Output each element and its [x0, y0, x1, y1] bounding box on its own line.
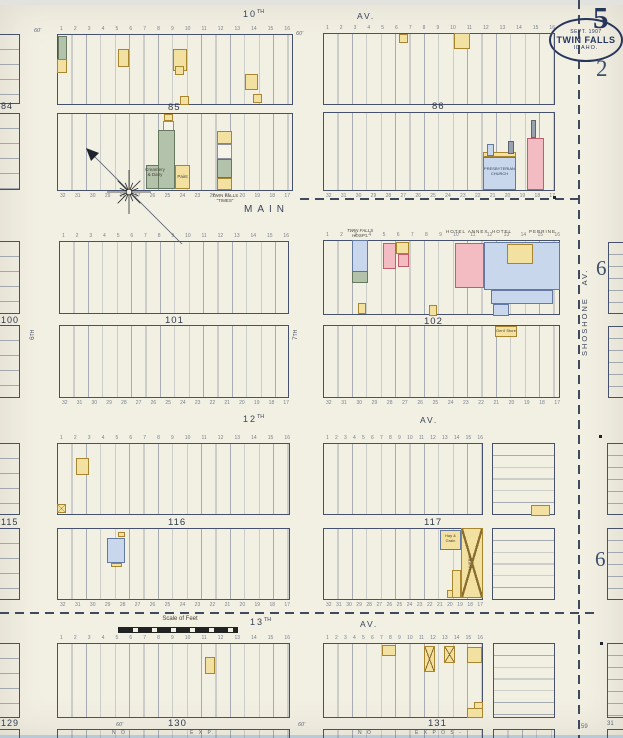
building — [164, 114, 173, 121]
block-117-south-east — [492, 528, 555, 600]
title-stamp-oval: SEPT. 1907 TWIN FALLS IDAHO. — [549, 18, 623, 62]
partial-block-right-4 — [607, 528, 623, 600]
street-label-6th: 6TH — [29, 316, 36, 340]
block-label-86: 86 — [432, 101, 445, 112]
partial-block-right-3 — [607, 443, 623, 515]
building — [467, 647, 482, 663]
building — [118, 49, 129, 67]
building — [352, 271, 368, 283]
building — [382, 645, 396, 656]
marker-dot — [600, 642, 603, 645]
lot-numbers: 1 2 3 4 5 6 7 8 9 10 11 12 13 14 15 16 — [60, 26, 290, 33]
dashed-line-shoshone — [578, 0, 580, 738]
scan-edge-top — [0, 0, 623, 5]
building-label-times: TWIN FALLS“TIMES” — [203, 193, 247, 204]
street-label-13th: 13TH — [250, 617, 271, 627]
street-label-main: MAIN — [244, 204, 289, 215]
building — [487, 144, 494, 156]
corner-number-31: 31 — [607, 721, 614, 727]
lot-numbers: 32 31 30 29 28 27 26 25 24 23 22 21 20 1… — [326, 400, 560, 407]
building — [467, 708, 483, 718]
corner-number-59: 59 — [581, 724, 588, 730]
building — [358, 303, 366, 314]
lot-numbers: 1 2 3 4 5 6 7 8 9 10 11 12 13 14 15 16 — [326, 25, 555, 32]
building — [452, 570, 461, 598]
strip-text-no: N O — [112, 730, 127, 736]
street-label-12th: 12TH — [243, 414, 264, 424]
partial-block-right-strip — [607, 729, 623, 738]
lot-numbers: 32 31 30 29 28 27 26 25 24 23 22 21 20 1… — [62, 400, 289, 407]
lot-numbers: 32 31 30 29 28 27 26 25 24 23 22 21 20 1… — [326, 193, 555, 200]
block-label-116: 116 — [168, 517, 186, 528]
building — [180, 96, 189, 105]
building — [217, 131, 232, 144]
partial-block-100-south — [0, 325, 20, 398]
building — [253, 94, 262, 103]
width-annotation: 60' — [34, 28, 41, 34]
building — [76, 458, 89, 475]
marker-dot — [599, 435, 602, 438]
width-annotation: 60' — [296, 31, 303, 37]
block-131 — [323, 643, 483, 718]
partial-block-115-south — [0, 528, 20, 600]
building-label-hotel-perrine: HOTEL PERRINE — [492, 229, 556, 234]
width-annotation: 60' — [116, 722, 123, 728]
block-label-85: 85 — [168, 102, 181, 113]
building — [175, 66, 184, 75]
building-label-livery: LIVERY — [468, 548, 473, 578]
building — [429, 305, 437, 316]
strip-text-expos: E X P O S - — [415, 730, 463, 736]
building — [205, 657, 215, 674]
block-label-100: 100 — [1, 315, 19, 325]
lot-numbers: 1 2 3 4 5 6 7 8 9 10 11 12 13 14 15 16 — [60, 635, 290, 642]
building — [493, 304, 509, 316]
building — [107, 538, 125, 563]
lot-numbers: 1 2 3 4 5 6 7 8 9 10 11 12 13 14 15 16 — [60, 435, 290, 442]
north-arrow-compass — [72, 136, 197, 251]
street-label-av-13th: AV. — [360, 619, 378, 629]
block-101-south — [59, 325, 289, 398]
street-label-7th: 7TH — [292, 316, 299, 340]
building — [398, 254, 409, 267]
lot-numbers: 32 31 30 29 28 27 26 25 24 23 22 21 20 1… — [60, 602, 290, 609]
right-block-number-6-lower: 6 — [595, 547, 606, 572]
building-label-hotel-annex: HOTEL ANNEX — [446, 229, 486, 234]
dashed-line-city-limits — [0, 612, 600, 614]
street-label-av-12th: AV. — [420, 415, 438, 425]
building-times-office — [217, 159, 232, 178]
partial-block-84-south — [0, 113, 20, 190]
stamp-state: IDAHO. — [574, 45, 599, 51]
right-block-number-6-upper: 6 — [596, 256, 607, 281]
building-hotel-annex — [455, 243, 484, 288]
partial-block-115-north — [0, 443, 20, 515]
street-label-av-top: AV. — [357, 11, 375, 21]
scale-bar — [118, 627, 238, 633]
block-label-101: 101 — [165, 315, 184, 326]
building-label-store: Gen'l Store — [492, 329, 520, 334]
building — [111, 563, 122, 567]
partial-block-right-2 — [608, 326, 623, 398]
lot-numbers: 1 2 3 4 5 6 7 8 9 10 11 12 13 14 15 16 — [326, 635, 483, 642]
block-label-131: 131 — [428, 718, 447, 729]
building-barn — [444, 646, 455, 663]
block-131-east — [493, 643, 555, 718]
building — [245, 74, 258, 90]
partial-block-129-strip — [0, 729, 20, 738]
building — [491, 290, 553, 304]
building-hotel-courtyard — [507, 244, 533, 264]
building — [527, 138, 544, 190]
block-strip-below-130 — [57, 729, 290, 738]
lot-numbers: 32 31 30 29 28 27 26 25 24 23 22 21 20 1… — [326, 602, 483, 609]
block-label-84: 84 — [1, 101, 13, 111]
building-label-church: PRESBYTERIANCHURCH — [481, 167, 518, 177]
block-strip-below-131-east — [493, 729, 555, 738]
building — [531, 505, 550, 516]
partial-block-100-north — [0, 241, 20, 314]
building-chimney — [531, 120, 536, 138]
building — [118, 532, 125, 537]
marker-dot — [553, 196, 556, 199]
block-101-north — [59, 241, 289, 314]
block-label-117: 117 — [424, 517, 442, 528]
block-label-129: 129 — [1, 718, 19, 728]
building — [383, 243, 396, 269]
building-barn — [57, 504, 66, 513]
building — [57, 59, 67, 73]
building — [217, 178, 232, 190]
partial-block-129 — [0, 643, 20, 718]
block-116-north — [57, 443, 290, 515]
building — [399, 34, 408, 43]
strip-text-no: N O — [358, 730, 373, 736]
block-label-102: 102 — [424, 316, 443, 327]
sanborn-map-sheet: 5 SEPT. 1907 TWIN FALLS IDAHO. 2 6 6 10T… — [0, 0, 623, 738]
building — [217, 144, 232, 159]
building — [454, 33, 470, 49]
sheet-number-small: 2 — [596, 56, 608, 82]
block-86-north — [323, 33, 555, 105]
building — [396, 242, 409, 254]
lot-numbers: 1 2 3 4 5 6 7 8 9 10 11 12 13 14 15 16 — [326, 435, 483, 442]
block-label-115: 115 — [1, 517, 18, 527]
street-label-shoshone: SHOSHONE AV. — [580, 236, 589, 356]
street-label-10th: 10TH — [243, 9, 264, 19]
block-116-south — [57, 528, 290, 600]
scale-label: Scale of Feet — [150, 616, 210, 623]
block-117-north — [323, 443, 483, 515]
strip-text-exp: E X P. — [190, 730, 216, 736]
partial-block-84-north — [0, 34, 20, 104]
stamp-city: TWIN FALLS — [557, 35, 616, 45]
partial-block-right-5 — [607, 643, 623, 718]
building-label-hay-grain: Hay &Grain — [440, 534, 461, 544]
width-annotation: 60' — [298, 722, 305, 728]
building-barn — [424, 646, 435, 672]
building — [508, 141, 514, 154]
block-130 — [57, 643, 290, 718]
block-102-south — [323, 325, 560, 398]
partial-block-right-1 — [608, 242, 623, 314]
block-86-south — [323, 112, 555, 191]
building-label-hospital: TWIN FALLSHOSP'L — [338, 228, 382, 239]
block-label-130: 130 — [168, 718, 187, 729]
building — [447, 590, 453, 598]
